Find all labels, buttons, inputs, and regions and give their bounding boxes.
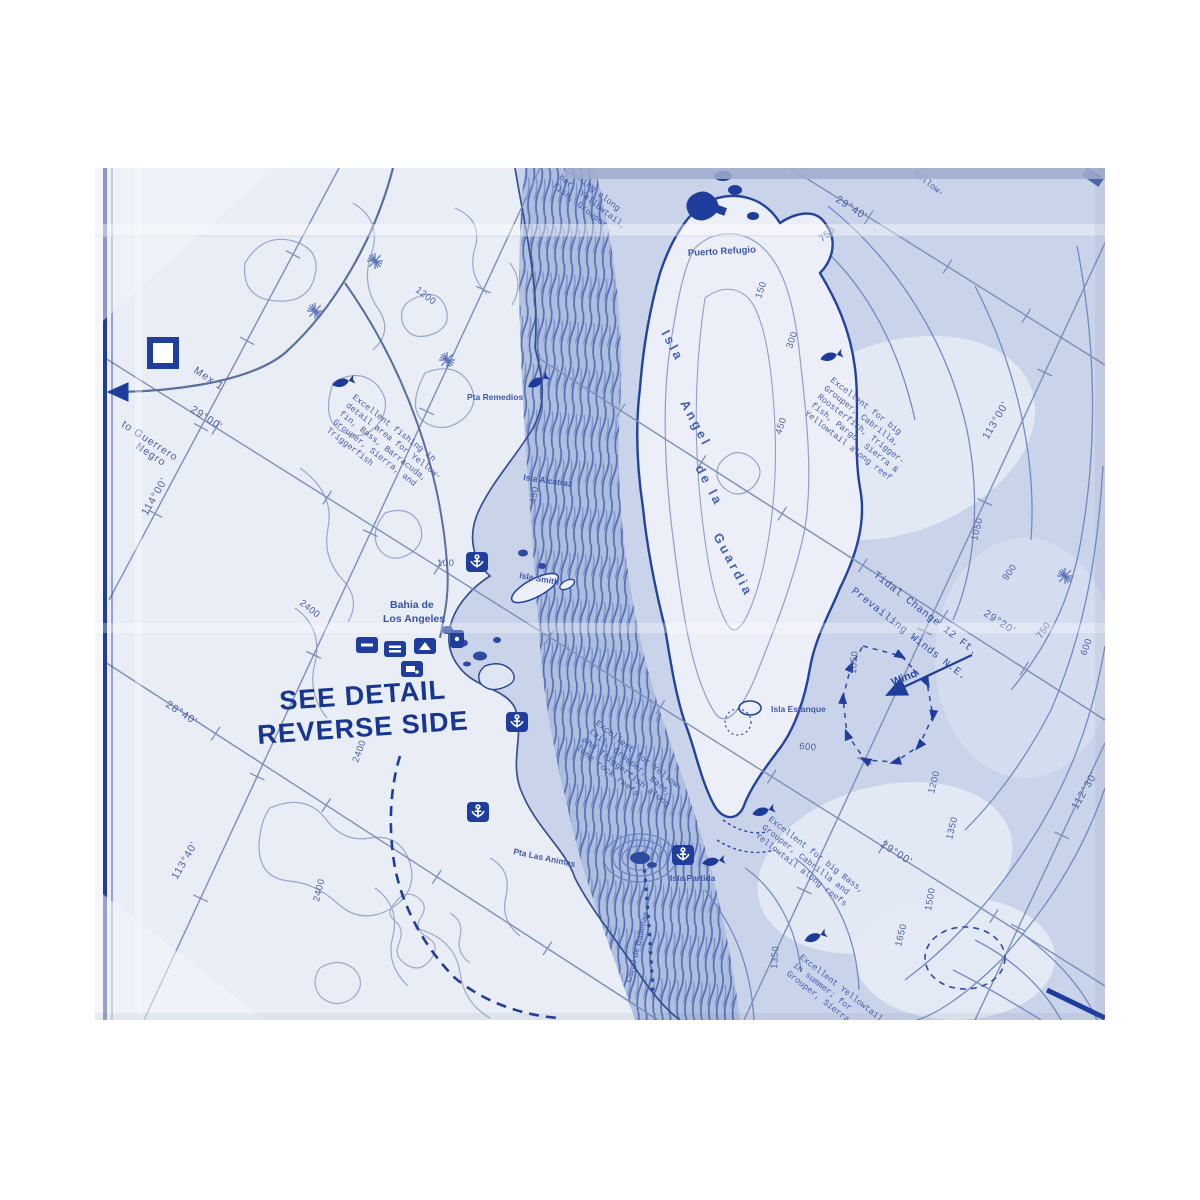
starburst-icon (439, 352, 455, 368)
facility-icon (356, 637, 378, 653)
starburst-icon (307, 303, 323, 319)
facility-icon (414, 638, 436, 654)
depth-label: 1350 (769, 945, 782, 969)
isla-estanque-shape (739, 701, 761, 715)
depth-label: 1050 (848, 650, 861, 674)
town-square-icon (150, 340, 176, 366)
label-isla-partida: Isla Partida (670, 873, 716, 883)
label-isla-estanque: Isla Estanque (771, 704, 826, 714)
anchor-icon (672, 845, 694, 865)
label-bahia-line1: Bahia de (390, 599, 434, 611)
starburst-icon (367, 253, 383, 269)
facility-icon (401, 661, 423, 677)
chart-svg: Puerto Refugio Pta Remedios Isla Alcatra… (95, 168, 1105, 1020)
label-pta-remedios: Pta Remedios (467, 392, 523, 402)
nautical-chart-scan: Puerto Refugio Pta Remedios Isla Alcatra… (95, 168, 1105, 1020)
anchor-icon (506, 712, 528, 732)
scanned-page: Puerto Refugio Pta Remedios Isla Alcatra… (0, 0, 1200, 1200)
depth-label: 600 (799, 741, 817, 753)
depth-label: 100 (437, 558, 454, 569)
anchor-icon (467, 802, 489, 822)
facility-icon (384, 641, 406, 657)
starburst-icon (1057, 568, 1073, 584)
anchor-icon (466, 552, 488, 572)
